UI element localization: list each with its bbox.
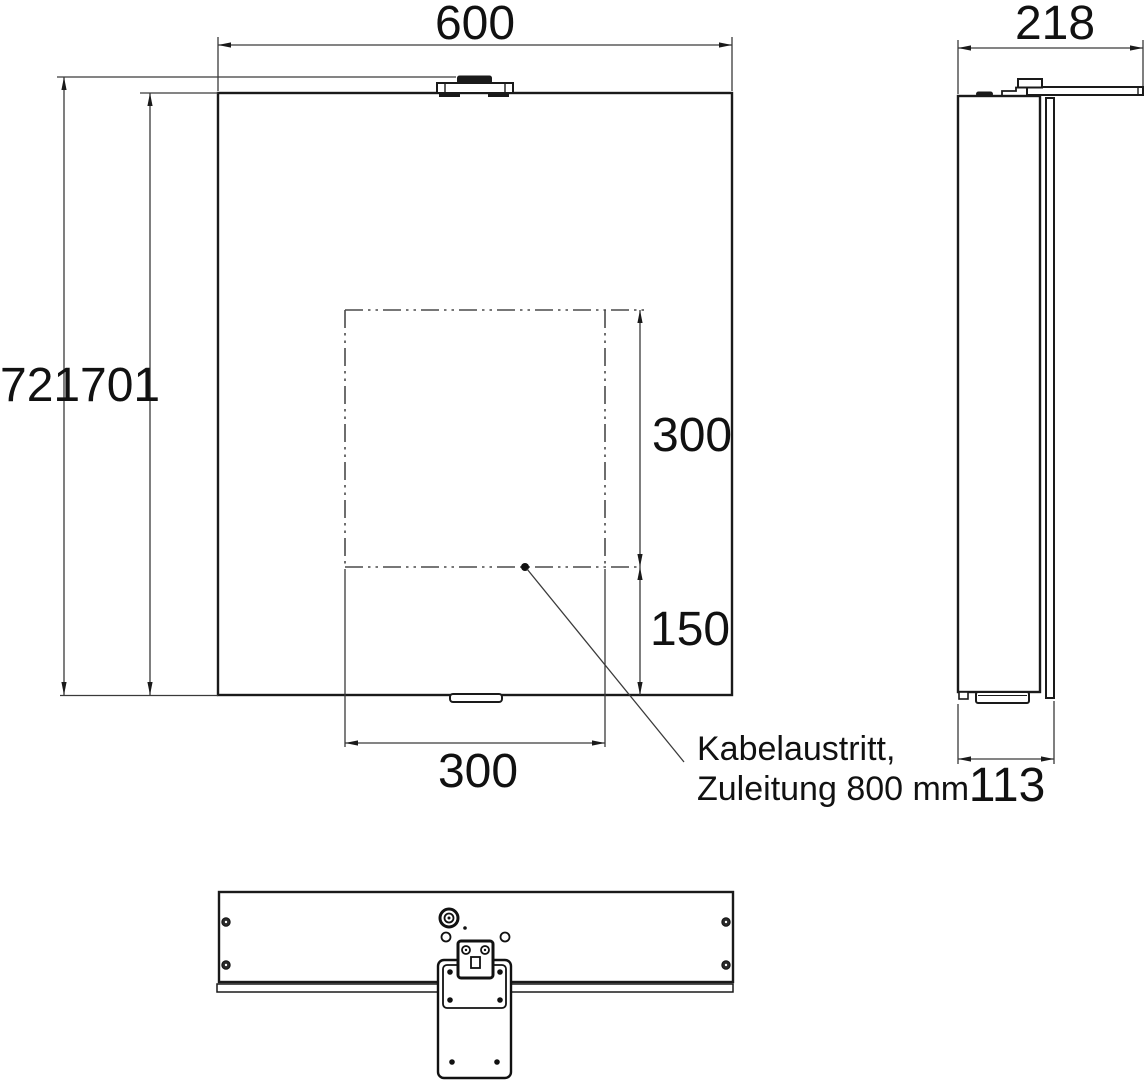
- cable-exit-callout-line1: Kabelaustritt,: [697, 729, 969, 769]
- side-view-open-door: [1002, 79, 1143, 96]
- dimension-label-cutout-offset-150: 150: [650, 606, 730, 654]
- cable-exit-callout-line2: Zuleitung 800 mm: [697, 769, 969, 809]
- dimension-113: [958, 701, 1054, 764]
- mounting-hole: [442, 933, 451, 942]
- bottom-view: [217, 892, 733, 1078]
- side-view-bottom-fittings: [959, 692, 1029, 703]
- dimension-label-overall-height-721: 721: [0, 362, 58, 410]
- mounting-hole: [501, 933, 510, 942]
- pin-hole: [463, 926, 467, 930]
- side-view-hinge-block: [1018, 79, 1042, 88]
- screw-icon: [222, 918, 230, 926]
- cable-exit-callout: Kabelaustritt, Zuleitung 800 mm: [697, 729, 969, 809]
- side-view-door-panel: [1046, 98, 1054, 698]
- bottom-mounting-tab: [450, 694, 502, 702]
- technical-drawing-mirror-cabinet: 600 721 701 300 150 300 218 113 Kabelaus…: [0, 0, 1146, 1080]
- drawing-canvas: [0, 0, 1146, 1080]
- screw-icon: [722, 961, 730, 969]
- side-view-body-outline: [958, 96, 1040, 692]
- dimension-label-depth-body-113: 113: [960, 762, 1054, 810]
- screw-icon: [222, 961, 230, 969]
- dimension-label-depth-open-218: 218: [1008, 0, 1102, 48]
- dimension-label-carcass-height-701: 701: [80, 362, 144, 410]
- hinge-bracket: [458, 941, 493, 978]
- side-view-top-clip: [976, 92, 993, 97]
- side-view: [958, 79, 1143, 703]
- top-mounting-bracket: [437, 76, 513, 98]
- dimension-label-cutout-width-300: 300: [430, 748, 526, 796]
- dimension-label-cutout-height-300: 300: [652, 412, 732, 460]
- screw-icon: [722, 918, 730, 926]
- dimension-label-width-600: 600: [430, 0, 520, 48]
- cable-grommet-icon: [440, 909, 458, 927]
